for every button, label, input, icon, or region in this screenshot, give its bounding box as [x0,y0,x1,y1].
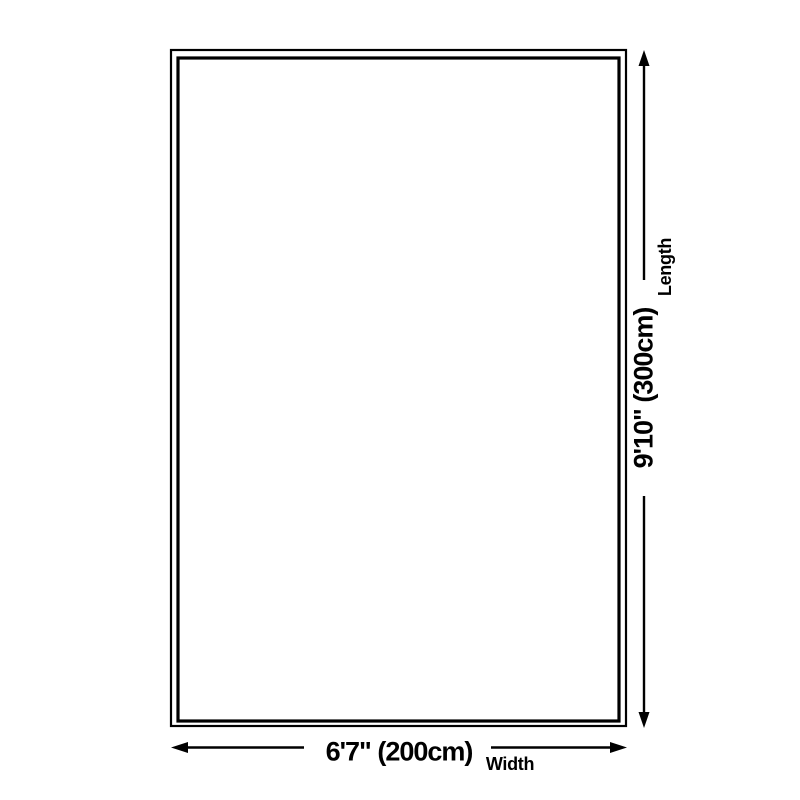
length-dimension-value: 9'10" (300cm) [631,308,658,469]
width-arrowhead-right-icon [610,742,627,753]
rug-outline-inner [178,58,619,721]
size-diagram: 6'7" (200cm) Width 9'10" (300cm) Length [0,0,800,800]
width-arrowhead-left-icon [171,742,188,753]
width-dimension-label: Width [486,755,534,773]
length-arrowhead-top-icon [639,50,650,66]
length-arrowhead-bottom-icon [639,712,650,728]
width-dimension-value: 6'7" (200cm) [326,739,473,766]
diagram-graphics [0,0,800,800]
length-dimension-label: Length [656,238,674,296]
rug-outline-outer [171,50,626,726]
